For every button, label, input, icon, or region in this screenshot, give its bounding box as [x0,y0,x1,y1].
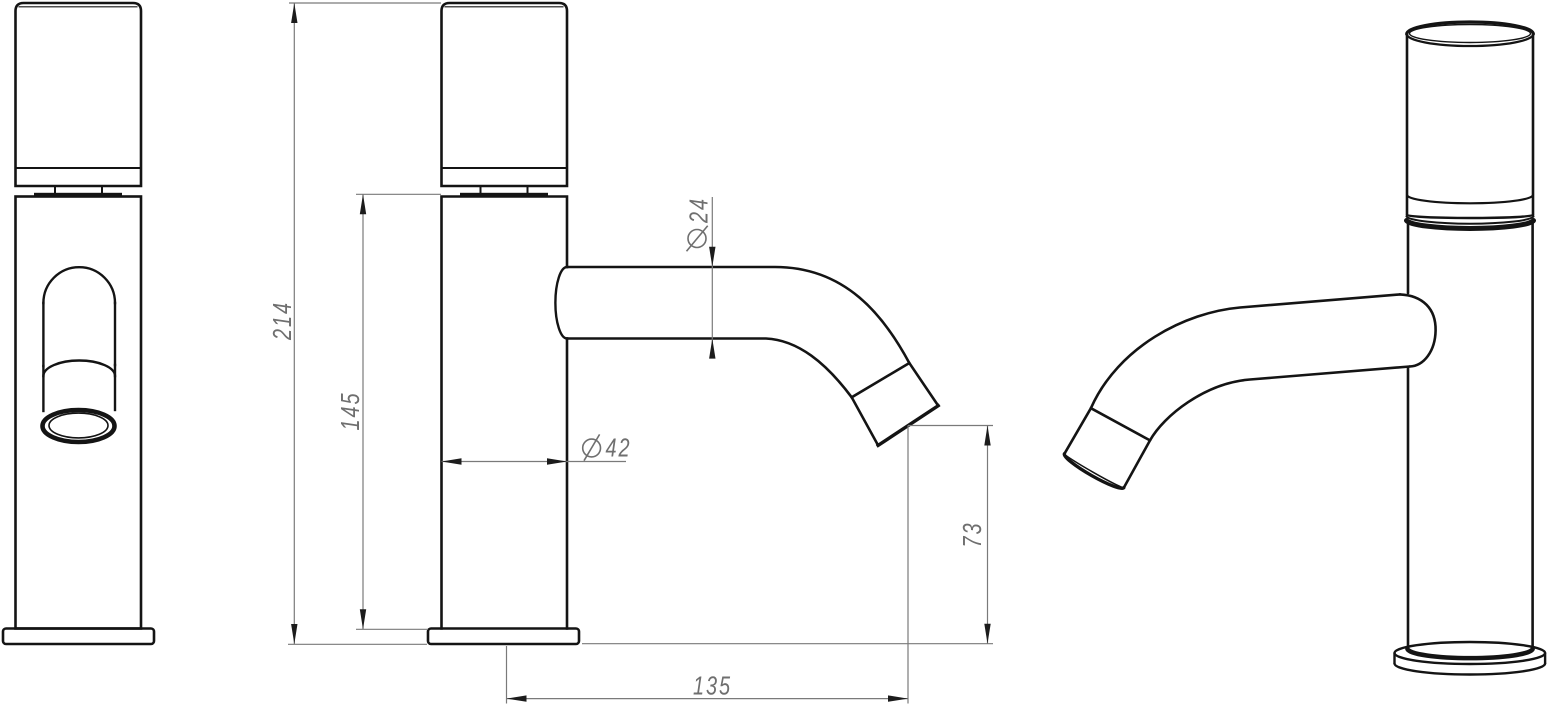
svg-text:24: 24 [684,197,713,224]
svg-text:42: 42 [606,433,632,462]
svg-text:214: 214 [268,301,297,341]
svg-text:135: 135 [693,671,732,700]
svg-text:73: 73 [958,521,987,547]
svg-text:145: 145 [336,391,365,430]
